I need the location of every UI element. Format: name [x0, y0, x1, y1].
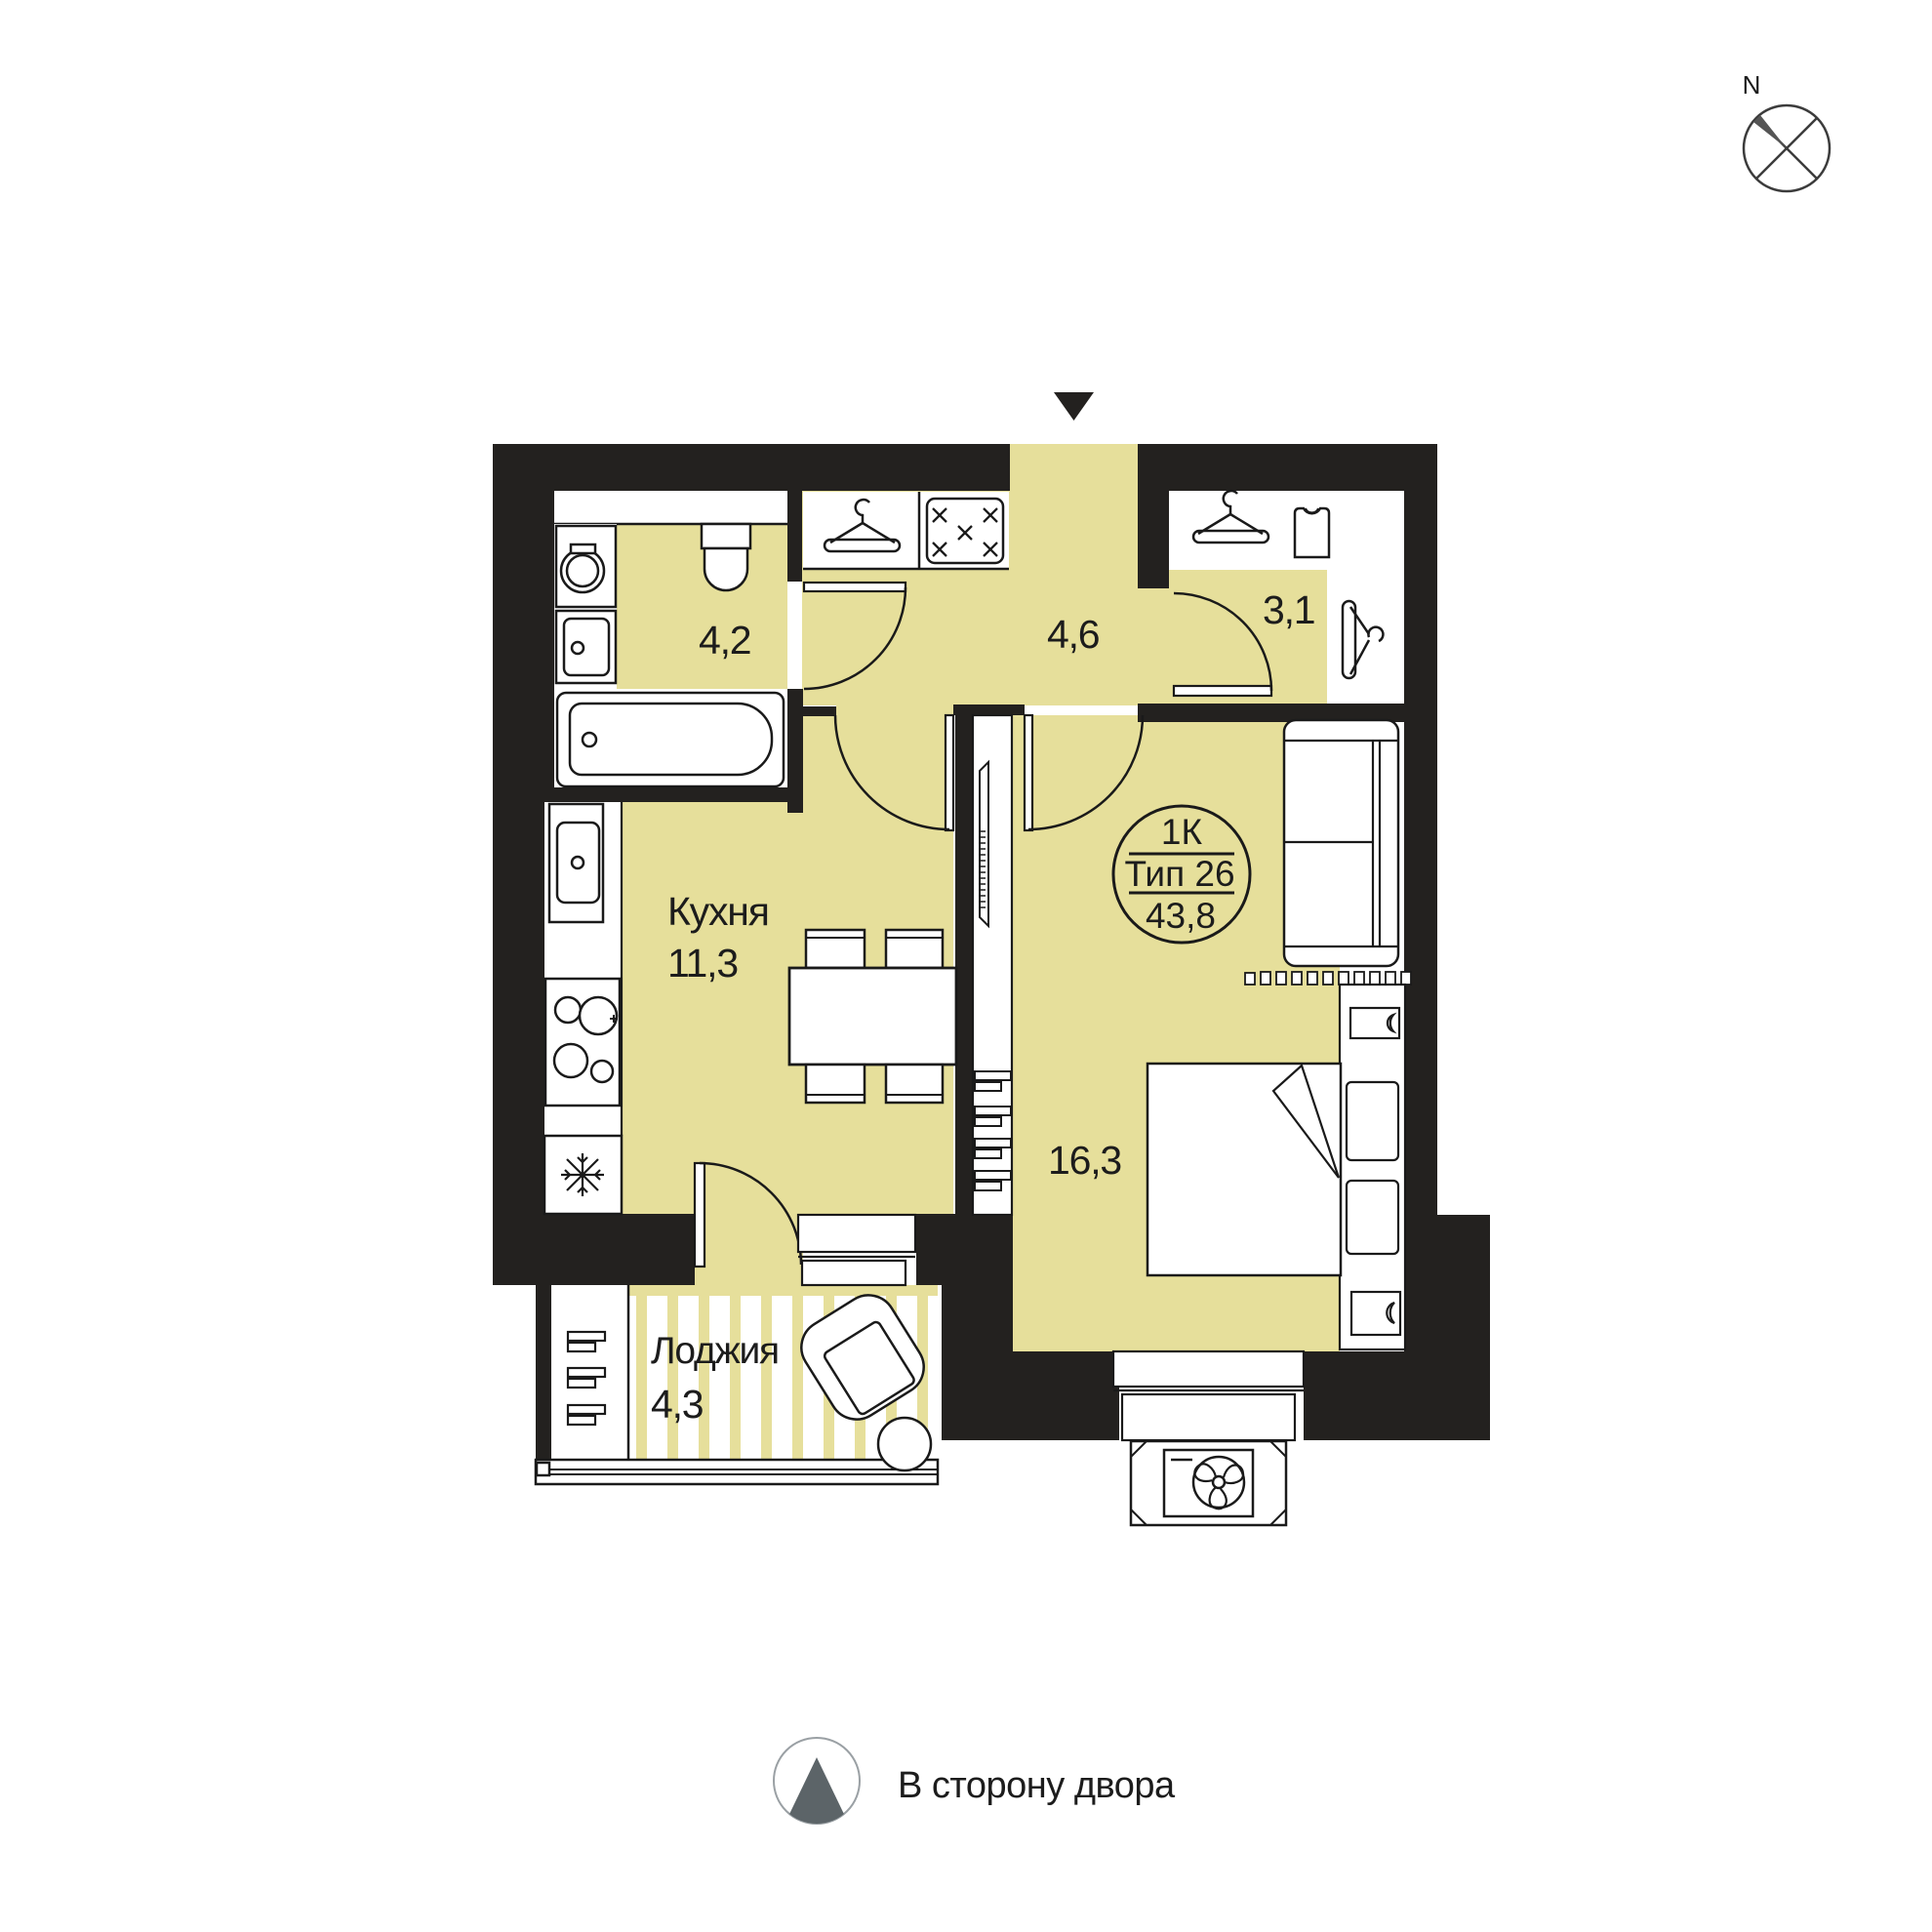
svg-text:43,8: 43,8: [1146, 896, 1216, 936]
svg-text:11,3: 11,3: [667, 941, 738, 986]
svg-text:3,1: 3,1: [1263, 587, 1314, 632]
svg-text:В сторону двора: В сторону двора: [898, 1765, 1176, 1806]
svg-text:16,3: 16,3: [1048, 1138, 1121, 1183]
svg-text:N: N: [1743, 70, 1761, 100]
svg-text:4,3: 4,3: [651, 1382, 703, 1427]
svg-text:4,6: 4,6: [1047, 612, 1099, 657]
svg-text:Кухня: Кухня: [667, 889, 769, 934]
svg-text:4,2: 4,2: [699, 618, 750, 663]
svg-text:Тип 26: Тип 26: [1124, 854, 1234, 894]
svg-text:Лоджия: Лоджия: [651, 1330, 779, 1372]
svg-text:1К: 1К: [1161, 812, 1203, 852]
